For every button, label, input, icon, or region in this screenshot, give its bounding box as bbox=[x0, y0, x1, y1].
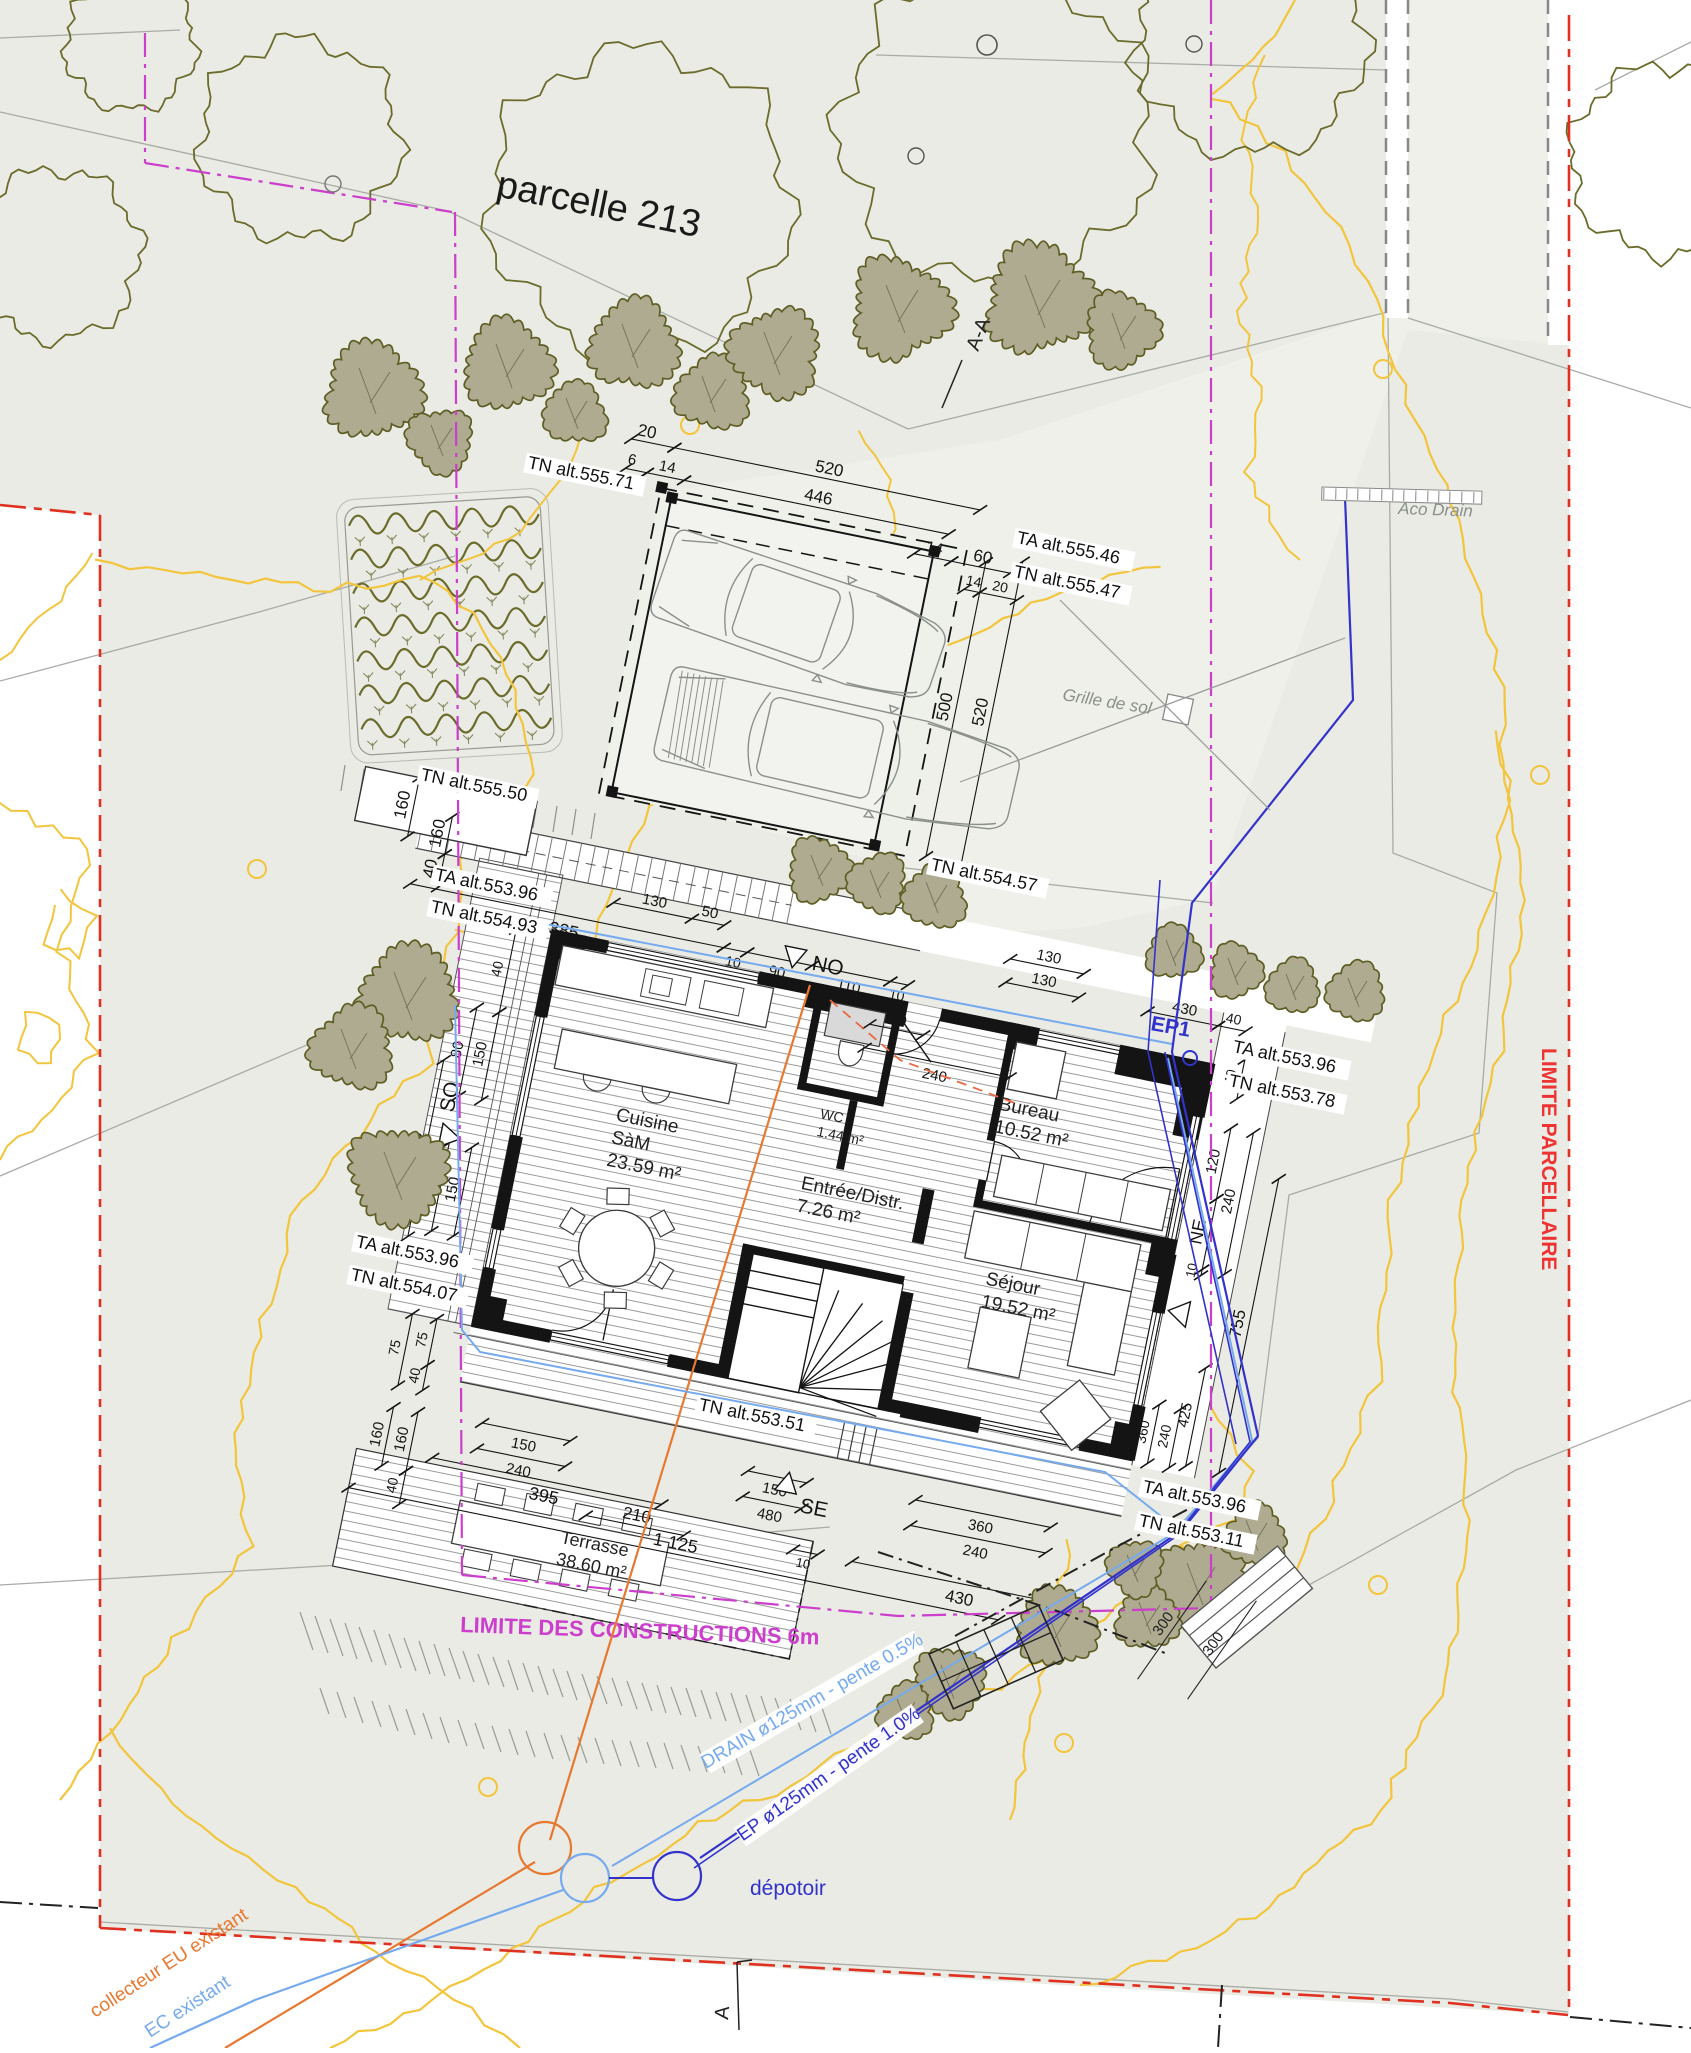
svg-text:dépotoir: dépotoir bbox=[750, 1877, 826, 1900]
svg-text:14: 14 bbox=[925, 538, 945, 558]
svg-text:Aco Drain: Aco Drain bbox=[1397, 499, 1473, 521]
svg-text:14: 14 bbox=[658, 457, 678, 477]
svg-text:LIMITE PARCELLAIRE: LIMITE PARCELLAIRE bbox=[1537, 1048, 1560, 1270]
svg-text:90: 90 bbox=[767, 962, 787, 982]
svg-text:20: 20 bbox=[636, 420, 658, 442]
svg-text:90: 90 bbox=[888, 1010, 908, 1030]
svg-text:50: 50 bbox=[700, 903, 720, 923]
svg-text:80: 80 bbox=[448, 1040, 468, 1060]
svg-text:A: A bbox=[711, 2005, 734, 2021]
svg-text:10: 10 bbox=[794, 1554, 811, 1572]
